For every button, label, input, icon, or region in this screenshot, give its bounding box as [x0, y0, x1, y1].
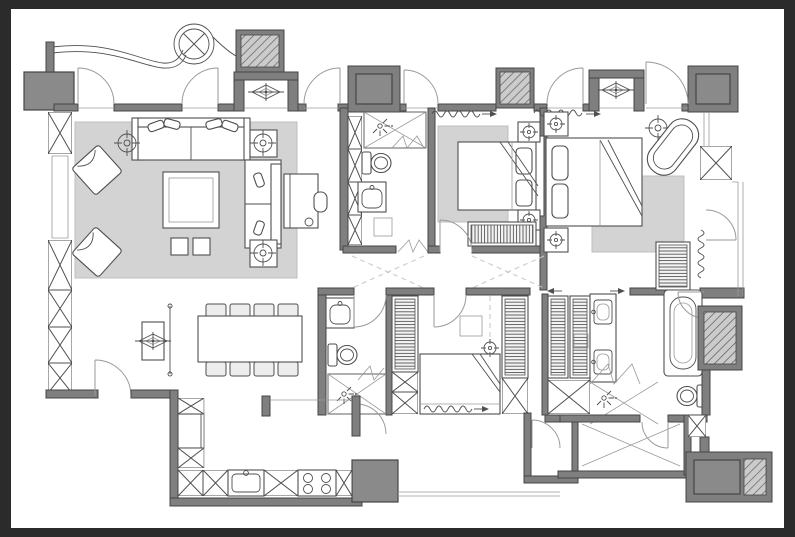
coffee-table [163, 172, 219, 228]
window-mullion [48, 290, 72, 327]
wardrobe-right [502, 296, 528, 414]
dining-chair [278, 362, 298, 376]
laundry-wall [524, 413, 531, 481]
window-mullion [688, 415, 706, 437]
louver-screen [656, 242, 690, 290]
basin-2 [326, 298, 354, 328]
stool [171, 238, 188, 255]
bed-4 [420, 354, 500, 414]
dining-chair [254, 362, 274, 376]
window-mullion [48, 363, 72, 393]
stool [193, 238, 210, 255]
dining-table [198, 316, 302, 362]
desk-chair [314, 192, 327, 212]
bed-2 [458, 136, 544, 216]
window-mullion [48, 112, 72, 154]
wardrobe-left [392, 296, 418, 414]
dining-chair [230, 362, 250, 376]
column-kitchen [352, 460, 398, 502]
toilet-1 [362, 152, 391, 174]
service-core [686, 452, 772, 502]
side-sofa [245, 160, 281, 248]
master-bathtub [664, 290, 702, 376]
bed-3 [546, 138, 642, 226]
dresser [468, 222, 536, 246]
window-mullion [48, 327, 72, 363]
living-room [72, 118, 327, 278]
screenshot-stage [0, 0, 795, 537]
basin-1 [358, 182, 386, 212]
window-mullion [48, 240, 72, 290]
main-sofa [132, 118, 250, 160]
cooktop [298, 470, 336, 496]
toilet-2 [328, 344, 357, 366]
window-mullion [700, 146, 732, 180]
fridge [178, 414, 204, 448]
dining-chair [206, 362, 226, 376]
floor-plan-canvas [0, 0, 795, 537]
kitchen-sink [228, 470, 264, 496]
